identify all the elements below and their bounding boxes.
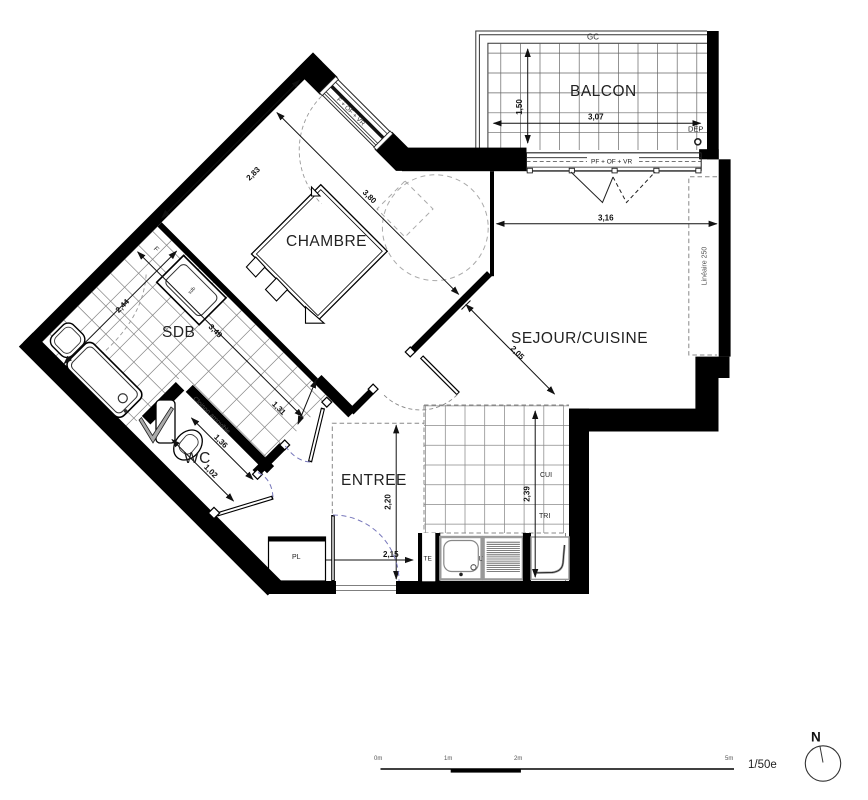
svg-text:SEJOUR/CUISINE: SEJOUR/CUISINE [511,330,648,347]
svg-text:CHAMBRE: CHAMBRE [286,233,367,250]
svg-text:Linéaire 250: Linéaire 250 [702,247,709,286]
svg-text:PL: PL [292,554,301,561]
svg-text:2,39: 2,39 [523,486,532,502]
svg-text:WC: WC [184,450,211,467]
svg-text:TE: TE [424,556,433,563]
svg-text:0m: 0m [374,756,382,762]
svg-text:2,15: 2,15 [383,550,399,559]
svg-text:SDB: SDB [162,324,195,341]
svg-text:5m: 5m [725,756,733,762]
svg-text:ENTREE: ENTREE [341,472,407,489]
svg-text:1/50e: 1/50e [748,759,777,771]
svg-text:DEP: DEP [688,125,703,134]
svg-text:3,07: 3,07 [588,113,604,122]
svg-text:1m: 1m [444,756,452,762]
svg-text:BALCON: BALCON [570,83,637,100]
svg-text:CUI: CUI [540,472,552,479]
svg-text:PF + OF + VR: PF + OF + VR [591,159,632,166]
svg-text:N: N [811,730,821,745]
svg-text:2,20: 2,20 [384,494,393,510]
svg-text:1,50: 1,50 [515,99,524,115]
svg-text:GC: GC [587,33,599,42]
svg-text:2m: 2m [514,756,522,762]
svg-text:3,16: 3,16 [598,214,614,223]
svg-text:TRI: TRI [539,513,550,520]
